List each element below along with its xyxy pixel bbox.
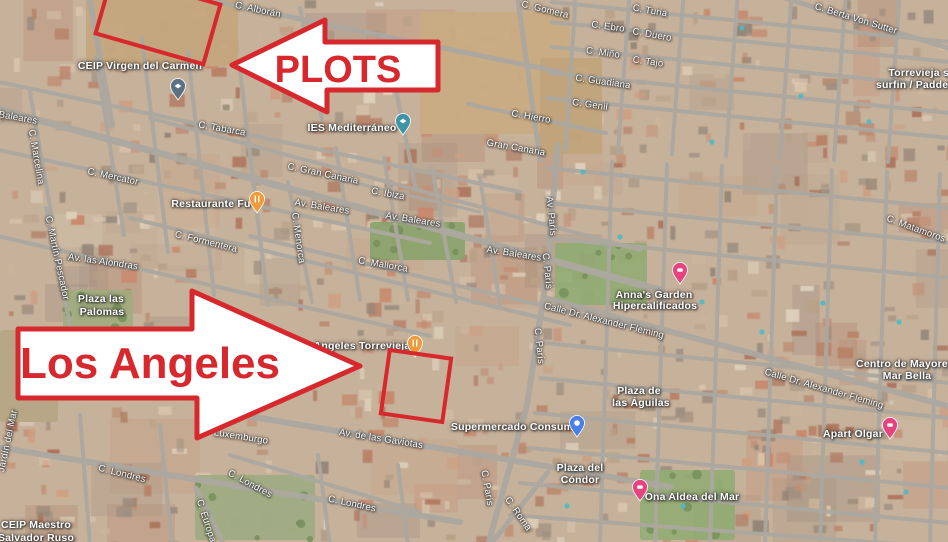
satellite-map-canvas[interactable]: C. AlboránC. GomeraC. TuriaC. EbroC. Due… [0, 0, 948, 542]
plots-target-outline [96, 0, 221, 64]
los-angeles-arrow-label: Los Angeles [20, 342, 280, 386]
red-annotations-layer [0, 0, 948, 542]
plots-arrow-label: PLOTS [275, 51, 402, 89]
site-highlight-box [381, 350, 451, 422]
